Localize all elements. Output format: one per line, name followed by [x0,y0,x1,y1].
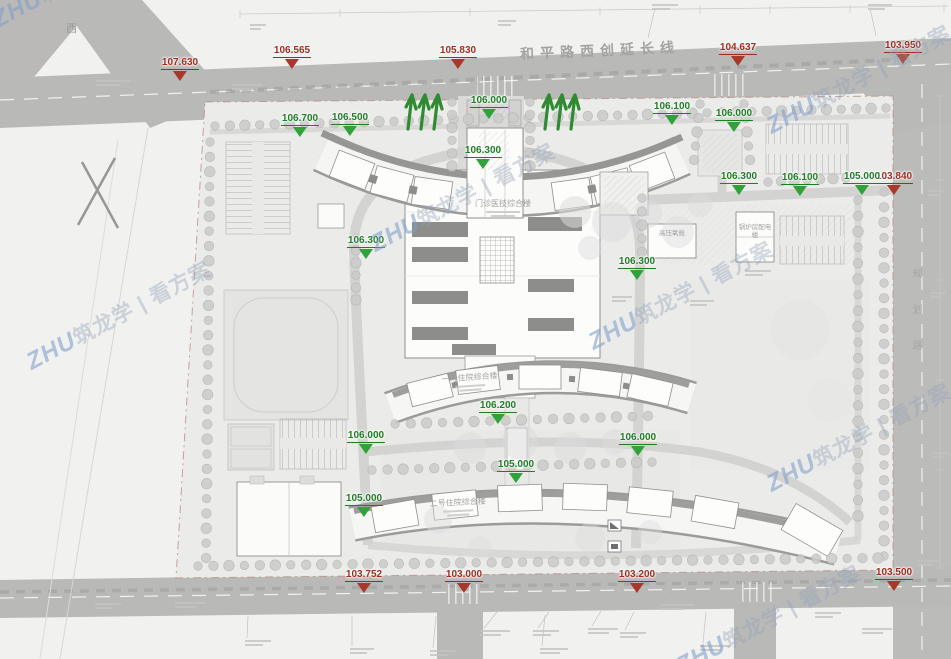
tiny-annotation-stub [588,628,618,636]
site-plan-canvas: 和平路西创延长线 规划路 西 门诊医技综合楼 一号住院综合楼 二号住院综合楼 高… [0,0,951,659]
road-label-guihua: 规划路 [908,268,923,376]
hyperbaric-building-label: 高压氧舱 [650,230,694,238]
tiny-annotation-stub [930,292,946,300]
tiny-annotation-stub [232,84,262,92]
tiny-annotation-stub [533,630,559,638]
tiny-annotation-stub [815,612,841,620]
tiny-annotation-stub [700,645,730,653]
tiny-annotation-stub [250,24,266,32]
west-facilities [224,142,348,556]
tiny-annotation-stub [918,560,938,568]
tiny-annotation-stub [932,452,948,460]
tiny-annotation-stub [430,650,456,658]
tiny-annotation-stub [928,190,944,198]
tiny-annotation-stub [498,20,516,28]
outpatient-building-label: 门诊医技综合楼 [448,199,558,217]
tiny-annotation-stub [95,603,121,611]
tiny-annotation-stub [96,80,130,88]
tiny-annotation-stub [660,604,694,612]
tiny-annotation-stub [480,630,510,638]
tiny-annotation-stub [745,270,771,278]
tiny-annotation-stub [540,648,568,656]
courtyard [480,237,514,283]
tiny-annotation-stub [620,632,646,640]
tiny-annotation-stub [652,4,678,12]
tiny-annotation-stub [245,640,271,648]
sports-field [224,290,348,420]
tiny-annotation-stub [690,300,714,308]
tiny-annotation-stub [862,628,892,636]
tiny-annotation-stub [868,4,892,12]
tiny-annotation-stub [612,296,632,304]
tiny-annotation-stub [175,602,205,610]
tiny-annotation-stub [350,648,374,656]
site-plan-drawing [0,0,951,659]
road-label-west: 西 [66,20,77,36]
crossing-x-symbol [78,158,118,228]
basketball-courts [228,424,274,470]
boiler-building-label: 锅炉房配电楼 [736,224,774,240]
